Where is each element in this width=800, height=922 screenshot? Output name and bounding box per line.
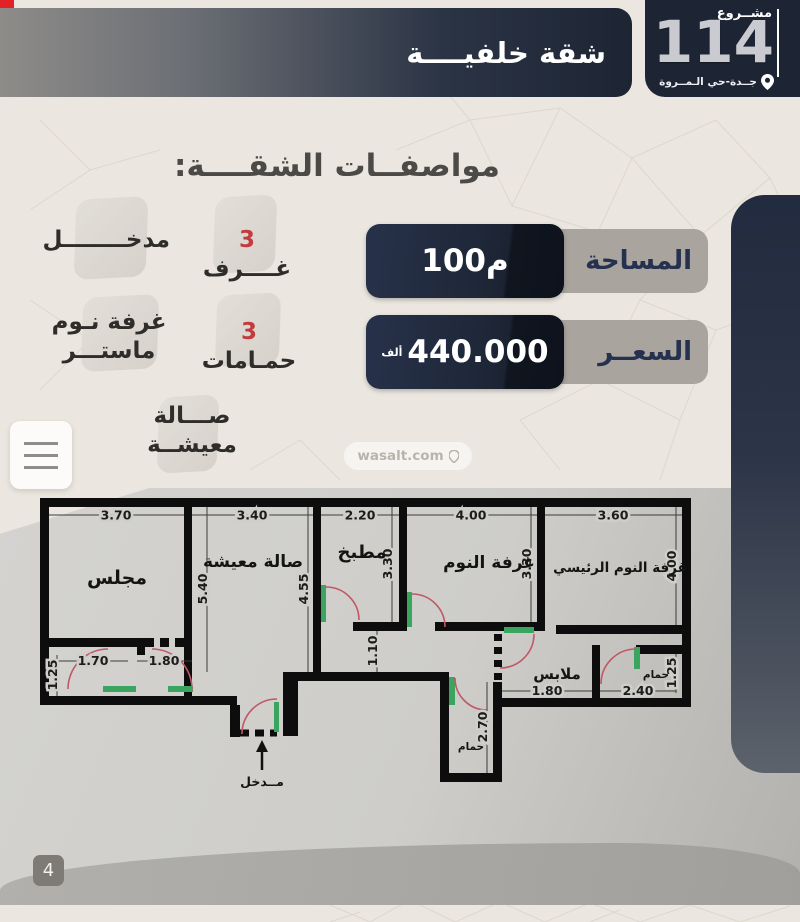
watermark: wasalt.com [344,442,472,470]
project-badge: مشــروع 114 جــدة-حي الـمــروة [645,0,800,97]
room-living: صالة معيشة [203,552,303,572]
dim-corridor-height: 1.25 [45,660,60,691]
dim-hall-width: 1.10 [365,635,380,666]
menu-button[interactable] [10,421,72,489]
area-value: 100م [421,243,508,279]
project-location-text: جــدة-حي الـمــروة [659,76,757,88]
project-location: جــدة-حي الـمــروة [659,74,774,90]
room-bedroom: غرفة النوم [443,553,535,573]
room-kitchen: مطبخ [338,542,387,563]
dim-majlis-width: 3.70 [101,508,132,523]
room-master-bedroom: غرفة النوم الرئيسي [553,560,687,576]
dim-closet-width: 1.80 [532,683,563,698]
spec-rooms-count: 3 [239,227,255,253]
room-bathroom-right: حمام [643,669,669,681]
area-label: المساحة [585,246,692,276]
entrance-marker: مــدخل [240,740,284,789]
dim-bath-right-width: 2.40 [623,683,654,698]
entrance-arrow-icon [256,740,268,752]
page-title: شقة خلفيــــة [406,36,606,70]
price-label: السعــر [598,337,692,367]
dim-living-width: 3.40 [237,508,268,523]
room-bathroom-bottom: حمام [458,741,484,753]
dim-master-width: 3.60 [598,508,629,523]
spec-bathrooms: 3 حمـامات [190,318,308,376]
project-number: 114 [653,13,774,71]
dim-living-height-right: 4.55 [296,574,311,605]
dim-corridor-door-1: 1.70 [78,653,109,668]
spec-bathrooms-count: 3 [241,319,257,345]
dim-bedroom-width: 4.00 [456,508,487,523]
price-unit: ألف [381,346,402,359]
specs-heading: مواصفــات الشقــــة: [128,148,500,184]
spec-rooms: 3 غــــرف [192,226,302,284]
flyer-page: شقة خلفيــــة مشــروع 114 جــدة-حي الـمـ… [0,0,800,922]
menu-icon [24,466,58,469]
spec-bathrooms-label: حمـامات [202,348,296,374]
menu-icon [24,454,58,457]
dim-corridor-door-2: 1.80 [149,653,180,668]
area-value-pill: 100م [366,224,564,298]
spec-entrance: مدخــــــــل [52,226,170,255]
spec-living-room: صـــالة معيشــة [136,402,248,460]
room-closet: ملابس [533,665,581,683]
floor-plan: 3.70 3.40 2.20 4.00 3.60 5.40 4.55 3.30 … [0,488,800,906]
header-bar: شقة خلفيــــة [0,8,632,97]
spec-master-bedroom: غرفة نـوم ماستـــر [48,308,170,366]
dim-living-height-left: 5.40 [195,573,210,604]
menu-icon [24,442,58,445]
watermark-text: wasalt.com [357,448,443,464]
room-majlis: مجلس [87,567,147,589]
entrance-label: مــدخل [240,774,284,789]
price-value-pill: 440.000 ألف [366,315,564,389]
price-value: 440.000 [407,334,548,370]
dim-bath-bottom-height: 2.70 [475,711,490,742]
project-divider [777,9,779,77]
dim-kitchen-width: 2.20 [345,508,376,523]
spec-rooms-label: غــــرف [203,256,291,282]
location-pin-icon [761,74,774,90]
page-number: 4 [33,855,64,886]
watermark-pin-icon [449,450,459,463]
